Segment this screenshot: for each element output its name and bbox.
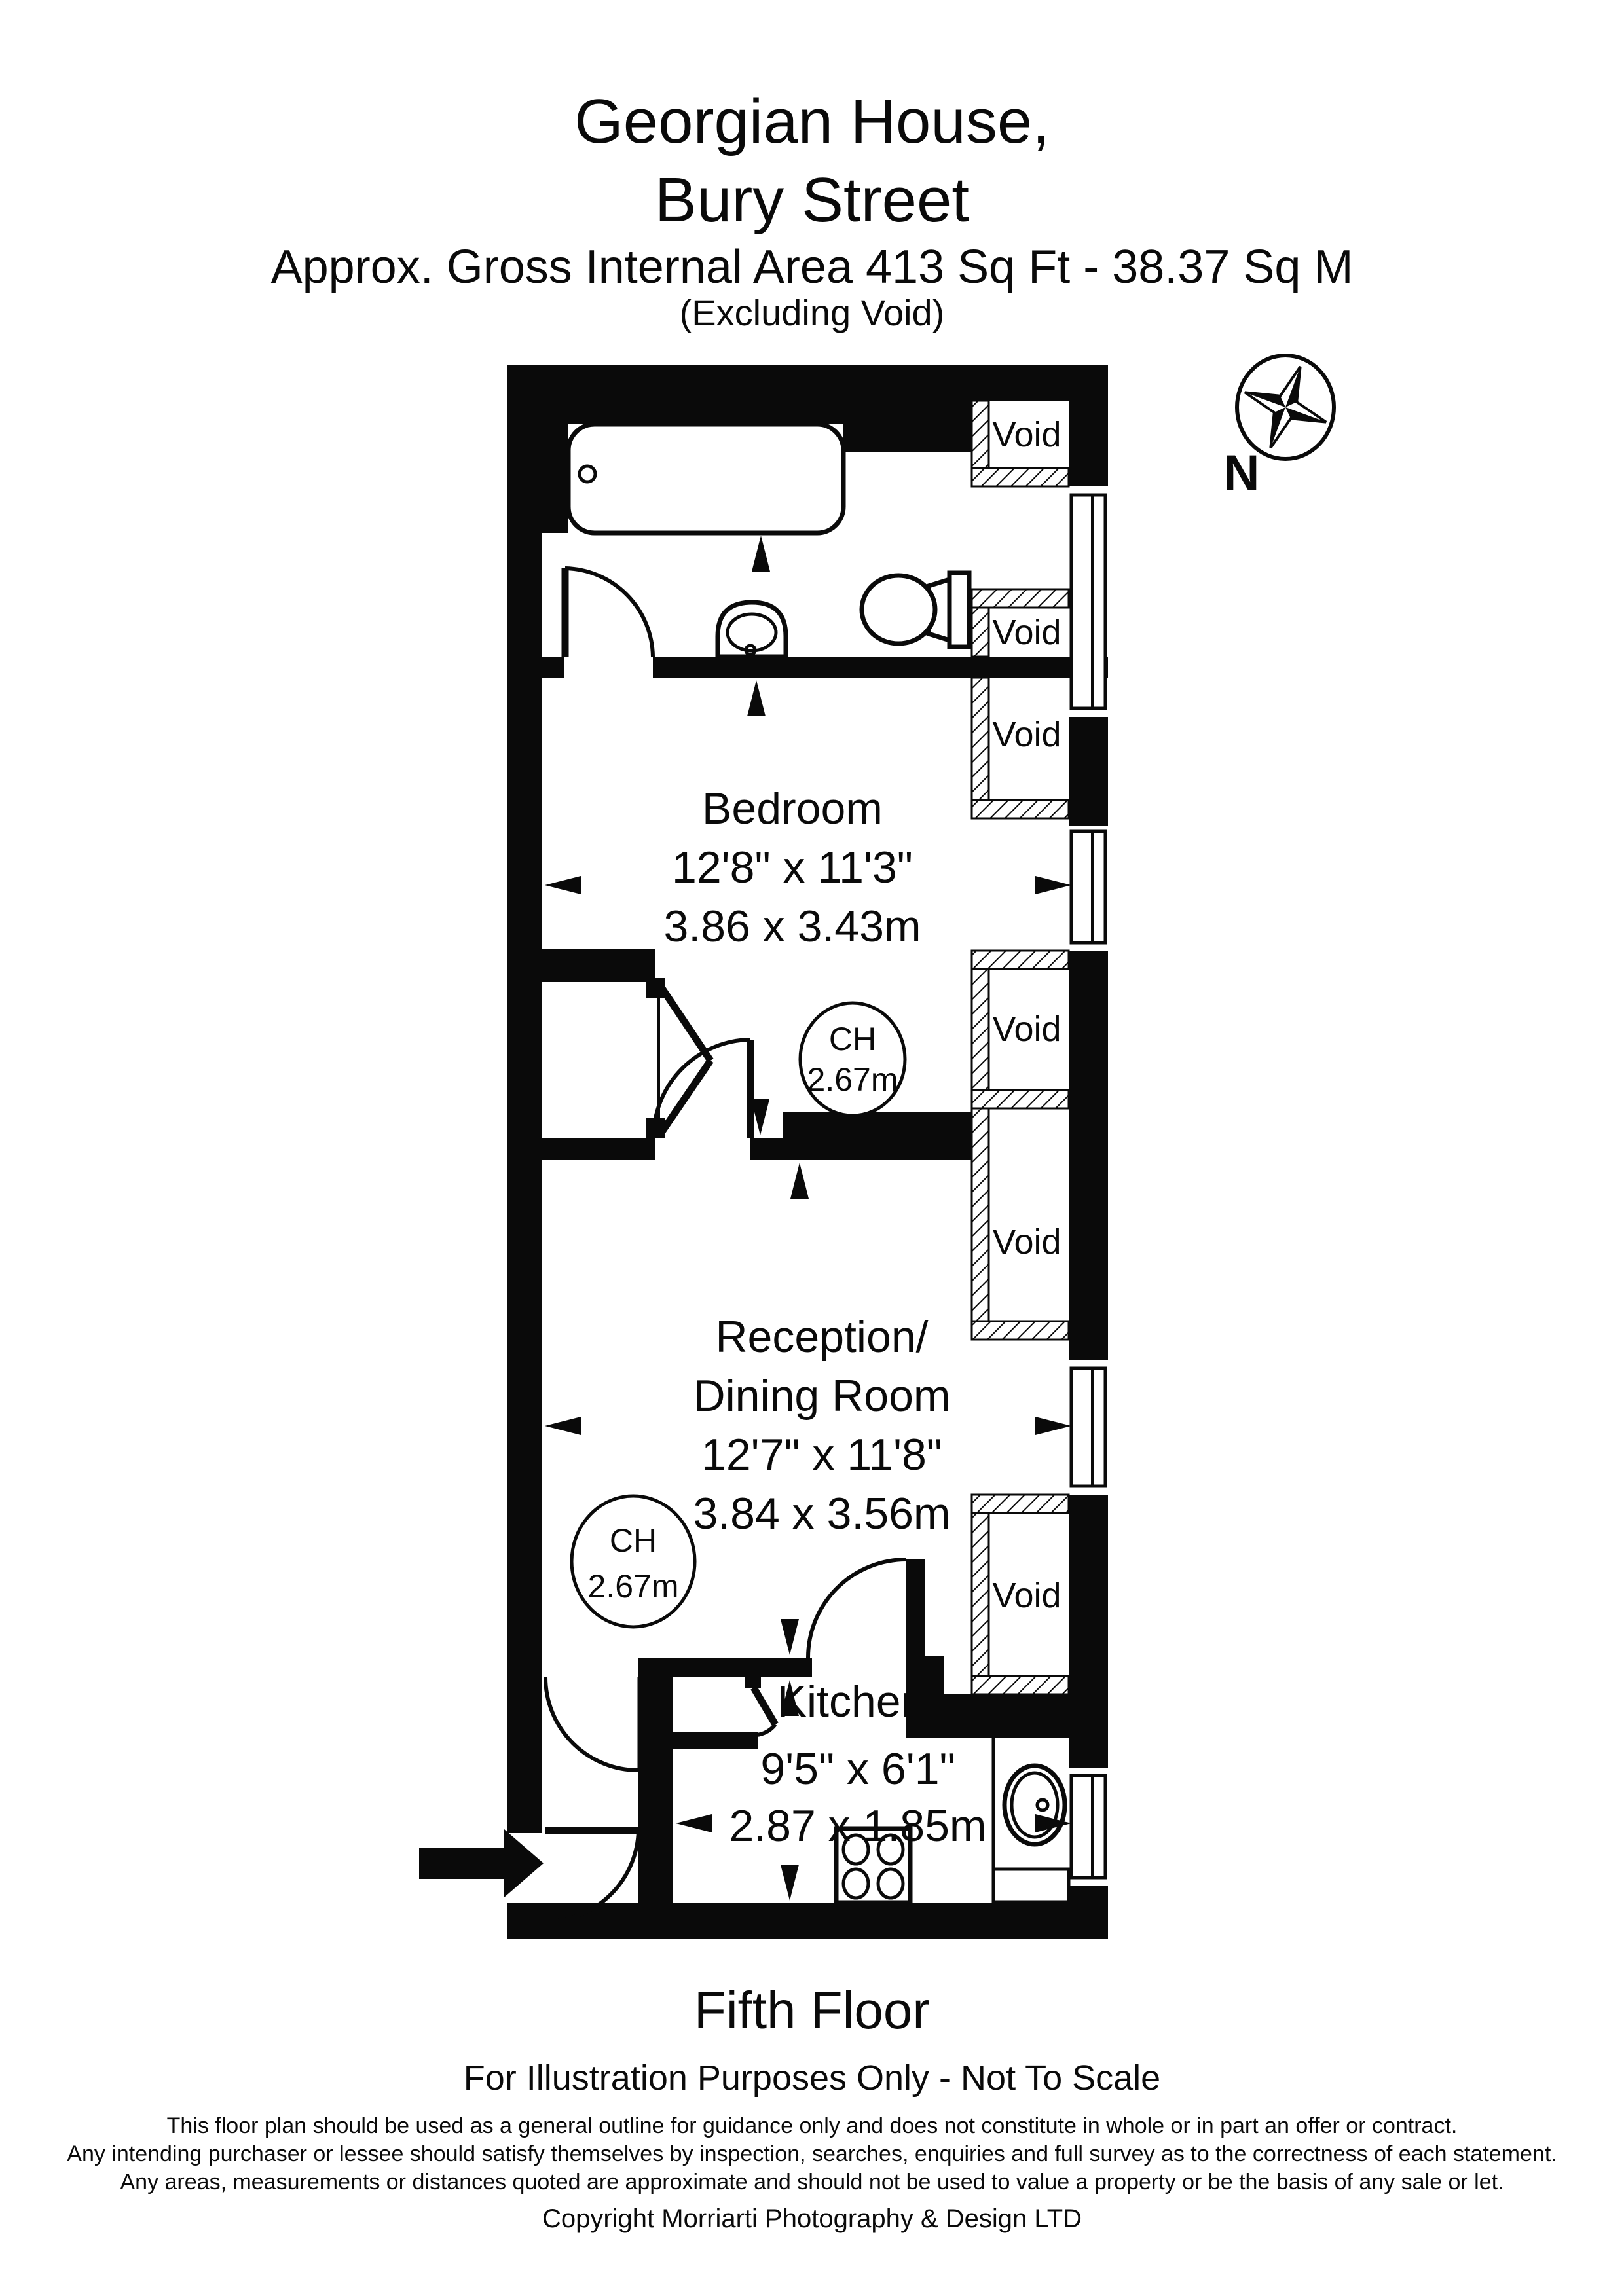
void5-hatch-bottom (972, 1321, 1069, 1339)
compass-rose: N (1224, 355, 1334, 501)
void-label-4: Void (992, 1010, 1061, 1049)
cupboard-door-leaf (754, 1688, 775, 1724)
void-label-6: Void (992, 1576, 1061, 1615)
disclaimer-title: For Illustration Purposes Only - Not To … (464, 2058, 1160, 2098)
excluding-void-line: (Excluding Void) (680, 292, 945, 333)
kitchen-dim-arrow-left (676, 1814, 712, 1832)
cupboard-door-arc (750, 1724, 775, 1735)
wall-top (507, 365, 1108, 401)
void-label-3: Void (992, 715, 1061, 754)
wall-divider1-stub (542, 657, 564, 678)
wall-cupboard-arm (653, 1732, 758, 1749)
kitchen-door-leaf (906, 1559, 925, 1658)
bedroom-dim-arrow-up (747, 680, 766, 716)
wall-divider1-main (653, 657, 1108, 678)
copyright-line: Copyright Morriarti Photography & Design… (542, 2204, 1082, 2233)
closet-bifold-leaf-bottom (660, 1061, 710, 1135)
kitchen-dims-metric: 2.87 x 1.85m (729, 1801, 986, 1851)
toilet-cistern (950, 573, 969, 647)
reception-name-line2: Dining Room (693, 1371, 950, 1421)
window-3 (1071, 1368, 1105, 1486)
title-line-2: Bury Street (655, 165, 969, 235)
kitchen-dims-imperial: 9'5" x 6'1" (760, 1744, 955, 1794)
wall-right-seg1 (1069, 365, 1108, 486)
kitchen-sink (1005, 1766, 1065, 1844)
title-line-1: Georgian House, (574, 86, 1050, 156)
window-2 (1071, 831, 1105, 943)
void2-hatch-top (972, 589, 1069, 608)
reception-dims-metric: 3.84 x 3.56m (693, 1489, 950, 1539)
window-4 (1071, 1776, 1105, 1878)
reception-dim-arrow-left (545, 1417, 581, 1435)
bedroom-dim-arrow-right (1035, 876, 1071, 894)
bedroom-dim-arrow-left (545, 876, 581, 894)
entrance-arrow (419, 1829, 544, 1897)
floorplan-canvas: Georgian House, Bury Street Approx. Gros… (0, 0, 1624, 2296)
bedroom-name: Bedroom (702, 784, 883, 833)
wall-bottom (507, 1903, 1108, 1939)
kitchen-dim-arrow-down (781, 1865, 799, 1901)
wall-bathroom-top-filler (542, 401, 848, 424)
ch-value-reception: 2.67m (588, 1568, 679, 1605)
bedroom-dims-metric: 3.86 x 3.43m (663, 902, 921, 951)
wall-bathroom-right-chunk (843, 401, 974, 452)
bedroom-dims-imperial: 12'8" x 11'3" (672, 843, 913, 892)
wall-right-seg3 (1069, 951, 1108, 1360)
kitchen-unit (993, 1869, 1069, 1902)
wall-bathroom-left-filler (542, 401, 568, 533)
void3-hatch-bottom (972, 800, 1069, 818)
reception-name-line1: Reception/ (715, 1312, 928, 1362)
ch-circle-reception (572, 1496, 695, 1627)
ch-value-bedroom: 2.67m (807, 1061, 898, 1098)
area-line: Approx. Gross Internal Area 413 Sq Ft - … (271, 241, 1354, 293)
wall-divider2-thick (783, 1112, 973, 1160)
footer: Fifth Floor For Illustration Purposes On… (67, 1981, 1557, 2233)
toilet-bowl (862, 575, 935, 644)
reception-dim-arrow-down (781, 1619, 799, 1655)
void3-hatch-left (972, 678, 989, 818)
kitchen-name: Kitchen (777, 1677, 926, 1726)
ch-label-reception: CH (610, 1522, 657, 1559)
ch-label-bedroom: CH (829, 1021, 876, 1057)
floor-label: Fifth Floor (694, 1981, 930, 2039)
reception-dim-arrow-up (790, 1163, 809, 1199)
wall-right-seg5 (1069, 1886, 1108, 1939)
bathroom-door-arc (565, 568, 653, 657)
void4-void5-hatch-left (972, 951, 989, 1339)
reception-dims-imperial: 12'7" x 11'8" (701, 1430, 942, 1480)
closet-bifold-leaf-top (660, 985, 710, 1061)
wall-divider2-door-stub (750, 1138, 783, 1160)
wall-right-seg2 (1069, 717, 1108, 826)
bathtub (568, 424, 843, 533)
void4-hatch-bottom (972, 1090, 1069, 1108)
void-label-5: Void (992, 1222, 1061, 1262)
floorplan-page: Georgian House, Bury Street Approx. Gros… (0, 0, 1624, 2296)
wall-closet-bottom-stub (542, 1138, 655, 1160)
bathroom-dim-arrow-up (752, 536, 770, 572)
wall-closet-top-stub (542, 949, 655, 982)
void-label-2: Void (992, 613, 1061, 652)
void-label-1: Void (992, 415, 1061, 454)
void6-hatch-left (972, 1495, 989, 1694)
disclaimer-line-3: Any areas, measurements or distances quo… (120, 2170, 1504, 2195)
disclaimer-line-1: This floor plan should be used as a gene… (167, 2113, 1458, 2138)
reception-dim-arrow-right (1035, 1417, 1071, 1435)
wall-left (507, 365, 542, 1833)
cupboard-door-hinge-block (745, 1677, 761, 1688)
wall-kitchen-top-right (944, 1694, 1108, 1738)
void1-hatch-bottom (972, 468, 1069, 486)
header: Georgian House, Bury Street Approx. Gros… (271, 86, 1354, 333)
void4-hatch-top (972, 951, 1069, 969)
hall-door-arc (545, 1677, 638, 1770)
disclaimer-line-2: Any intending purchaser or lessee should… (67, 2141, 1557, 2166)
void6-hatch-top (972, 1495, 1069, 1513)
ch-circle-bedroom (800, 1003, 905, 1116)
void-shaft: Void Void Void Void Void Void (972, 401, 1069, 1694)
north-label: N (1224, 445, 1260, 501)
window-1 (1071, 495, 1105, 708)
kitchen-door-arc (808, 1559, 906, 1658)
wall-reception-bottom-band (638, 1658, 812, 1677)
void6-hatch-bottom (972, 1676, 1069, 1694)
